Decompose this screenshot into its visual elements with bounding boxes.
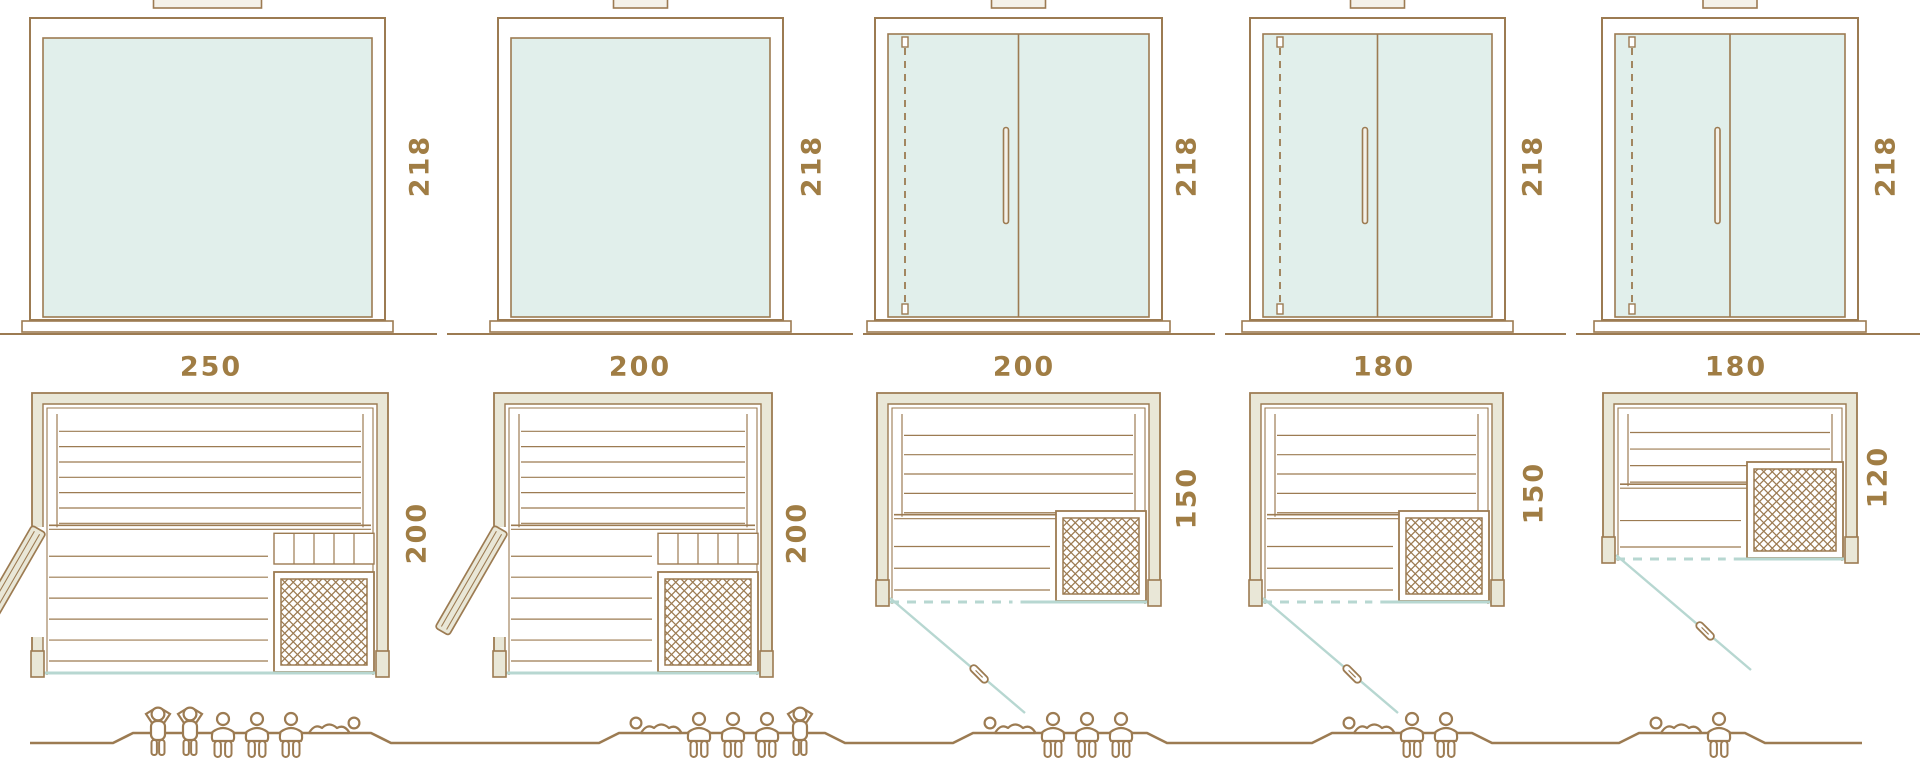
bench-board-section xyxy=(274,533,374,564)
plan-depth-label: 150 xyxy=(1519,462,1550,524)
plan-depth-label: 120 xyxy=(1863,446,1894,508)
front-elevation-model-200x150 xyxy=(867,0,1170,332)
plan-width-label: 200 xyxy=(609,352,671,383)
sauna-size-diagram: 218 218 218 218 218 250 200 200 180 180 … xyxy=(0,0,1920,770)
floor-plan-model-200x200 xyxy=(435,393,773,677)
heater-grille xyxy=(281,579,367,665)
door-handle xyxy=(1363,128,1368,224)
glass-panel xyxy=(43,38,372,317)
floor-plan-model-250x200 xyxy=(0,393,389,677)
hinge-icon xyxy=(902,37,908,47)
plan-width-label: 180 xyxy=(1705,352,1767,383)
door-handle-icon xyxy=(1342,664,1363,685)
hinge-icon xyxy=(1277,304,1283,314)
heater xyxy=(1399,511,1489,601)
base-plinth xyxy=(22,321,393,332)
heater xyxy=(1056,511,1146,601)
heater xyxy=(274,572,374,672)
hinge-icon xyxy=(1629,37,1635,47)
bench-board-section xyxy=(658,533,758,564)
plan-width-label: 250 xyxy=(180,352,242,383)
roof-vent xyxy=(992,0,1046,8)
floor-plan-model-180x120 xyxy=(1602,393,1858,670)
door-handle xyxy=(1715,128,1720,224)
base-plinth xyxy=(867,321,1170,332)
heater-grille xyxy=(1063,518,1139,594)
base-plinth xyxy=(1242,321,1513,332)
plan-depth-label: 150 xyxy=(1172,467,1203,529)
roof-vent xyxy=(1351,0,1405,8)
capacity-figures-model-180x150 xyxy=(1344,713,1458,757)
door-handle xyxy=(1004,128,1009,224)
capacity-figures-model-180x120 xyxy=(1651,713,1731,757)
open-glass-door-swing xyxy=(1616,555,1751,670)
front-elevation-model-180x120 xyxy=(1594,0,1866,332)
plan-depth-label: 200 xyxy=(402,502,433,564)
base-plinth xyxy=(1594,321,1866,332)
diagram-canvas xyxy=(0,0,1920,770)
hinge-icon xyxy=(902,304,908,314)
elevation-height-label: 218 xyxy=(1518,135,1549,197)
roof-vent xyxy=(1703,0,1757,8)
elevation-height-label: 218 xyxy=(1871,135,1902,197)
front-elevation-model-200x200 xyxy=(490,0,791,332)
hinge-icon xyxy=(1629,304,1635,314)
open-glass-door-swing xyxy=(1263,598,1398,713)
elevation-height-label: 218 xyxy=(405,135,436,197)
capacity-figures-model-200x150 xyxy=(985,713,1133,757)
heater xyxy=(658,572,758,672)
door-handle-icon xyxy=(1695,621,1716,642)
roof-vent xyxy=(614,0,668,8)
floor-plan-model-200x150 xyxy=(876,393,1161,713)
plan-width-label: 200 xyxy=(993,352,1055,383)
heater-grille xyxy=(1754,469,1836,551)
plan-depth-label: 200 xyxy=(782,502,813,564)
elevation-height-label: 218 xyxy=(797,135,828,197)
hinge-icon xyxy=(1277,37,1283,47)
capacity-ground-line xyxy=(30,733,1862,743)
plan-width-label: 180 xyxy=(1353,352,1415,383)
floor-plan-model-180x150 xyxy=(1249,393,1504,713)
roof-vent xyxy=(154,0,262,8)
elevation-height-label: 218 xyxy=(1172,135,1203,197)
heater xyxy=(1747,462,1843,558)
front-elevation-model-250x200 xyxy=(22,0,393,332)
heater-grille xyxy=(665,579,751,665)
glass-panel xyxy=(511,38,770,317)
door-handle-icon xyxy=(969,664,990,685)
front-elevation-model-180x150 xyxy=(1242,0,1513,332)
heater-grille xyxy=(1406,518,1482,594)
base-plinth xyxy=(490,321,791,332)
open-glass-door-swing xyxy=(890,598,1025,713)
